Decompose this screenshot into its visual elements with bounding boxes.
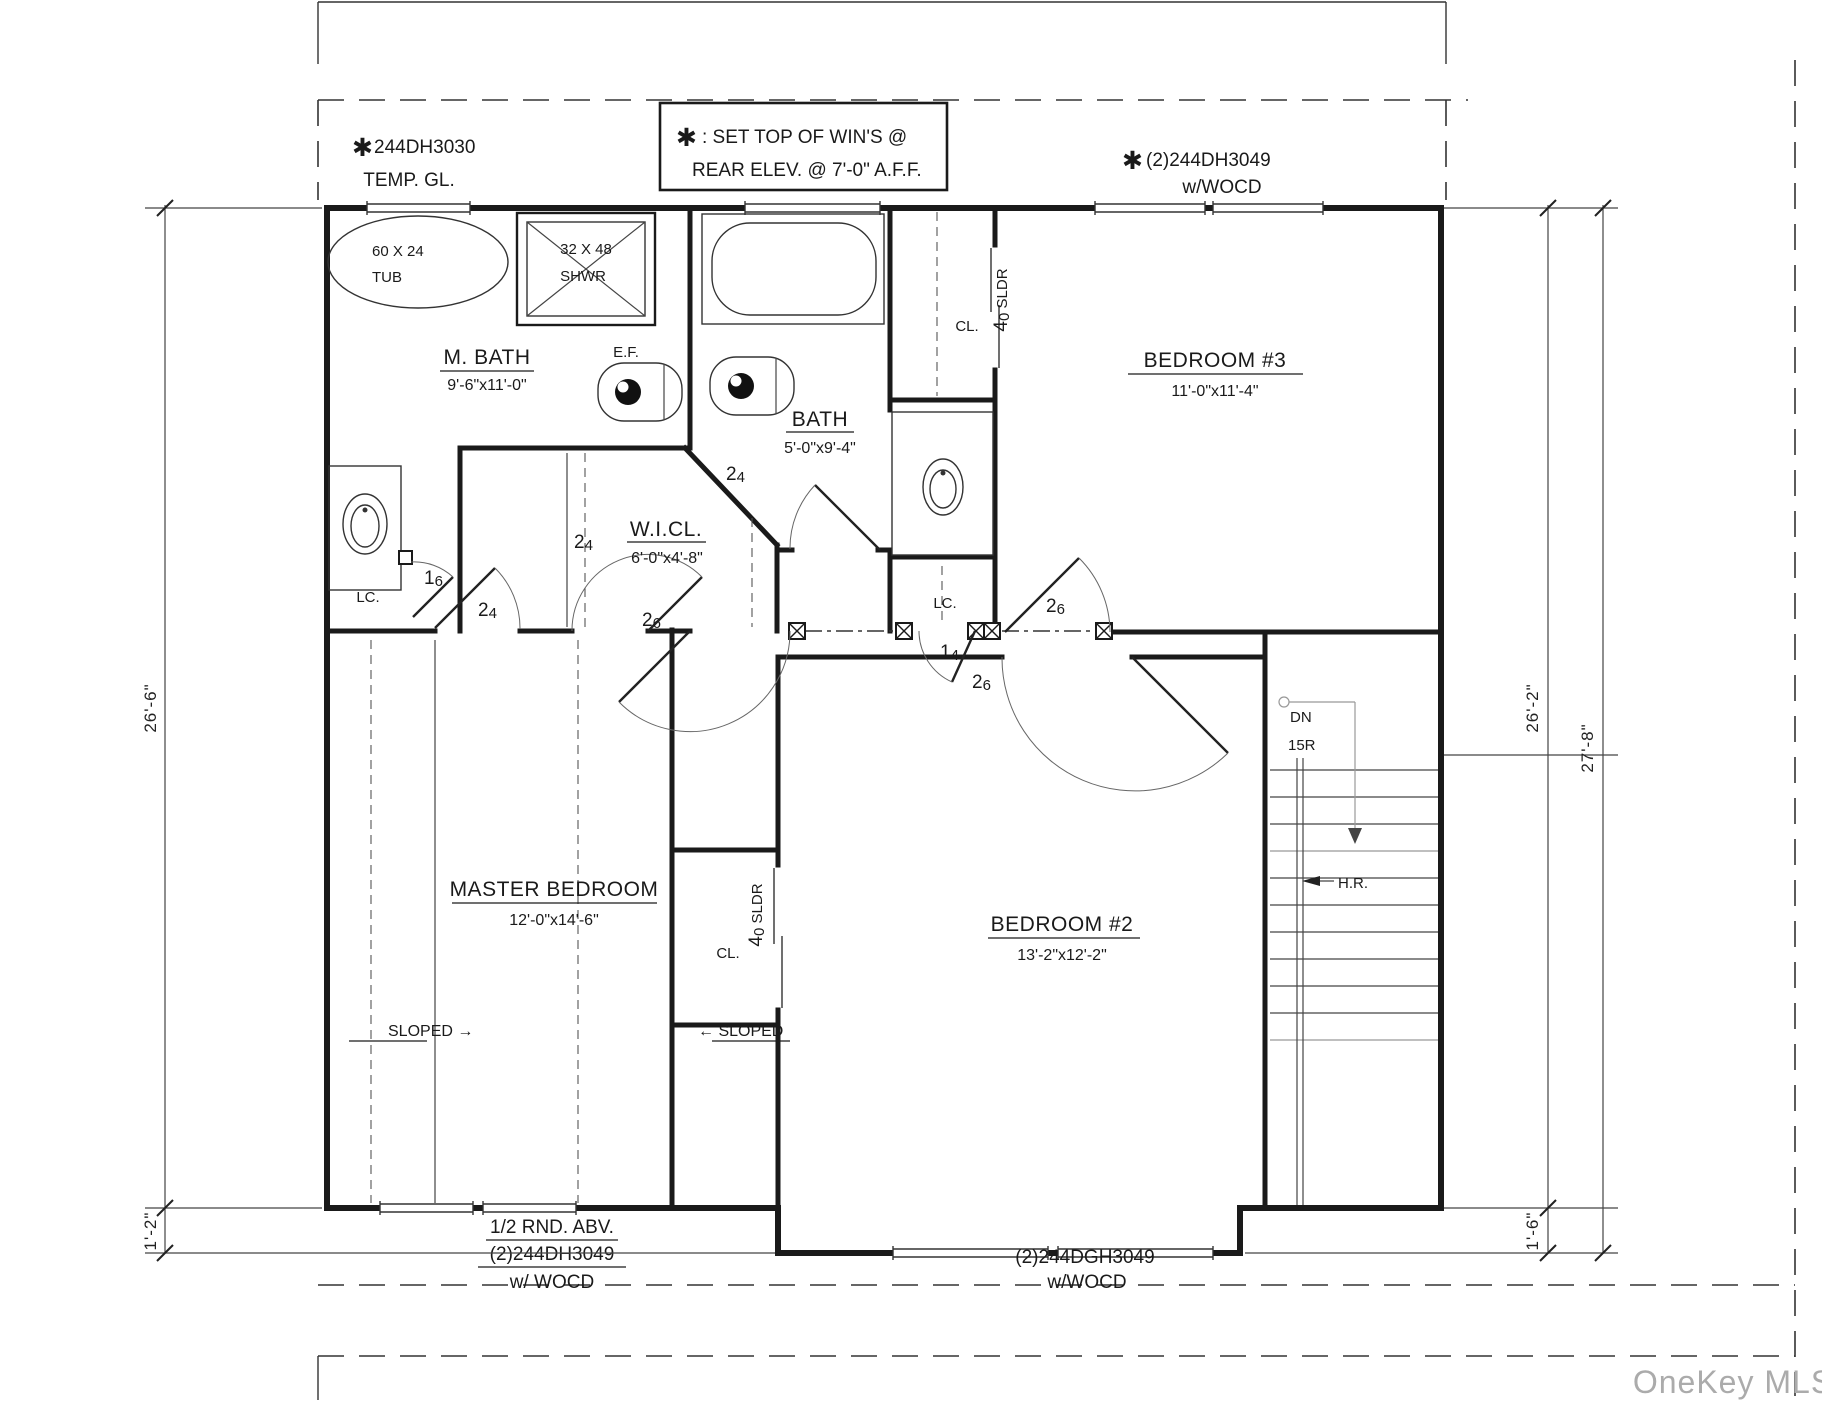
window-note-topleft-2: TEMP. GL. (363, 170, 455, 191)
room-dims-mbath: 9'-6"x11'-0" (447, 377, 526, 394)
sloped-ceiling-label-right: ← SLOPED (698, 1023, 783, 1040)
room-label-wicl: W.I.CL. (630, 518, 702, 541)
slider-size-label: 40 SLDR (746, 883, 768, 946)
door-mbath-24: 24 (435, 568, 520, 629)
stairs-risers-label: 15R (1288, 737, 1316, 754)
dimension-left-lower: 1'-2" (141, 1212, 160, 1251)
tub-size-label: 60 X 24 (372, 243, 424, 260)
dimension-right-inner: 26'-2" (1523, 683, 1542, 732)
window-master-b (483, 1201, 576, 1215)
door-bedroom3-26: 26 (1005, 558, 1110, 632)
room-label-bedroom2: BEDROOM #2 (991, 913, 1134, 936)
context-outline (318, 2, 1795, 1400)
column-post (984, 623, 1000, 639)
door-master-26: 26 (619, 610, 790, 732)
room-dims-bedroom2: 13'-2"x12'-2" (1017, 947, 1107, 964)
door-post (399, 551, 412, 564)
door-bath-24: 24 (726, 464, 880, 550)
column-post (896, 623, 912, 639)
room-dims-wicl: 6'-0"x4'-8" (631, 550, 703, 567)
door-bedroom2-26: 26 (972, 657, 1228, 791)
room-label-mbath: M. BATH (443, 346, 530, 369)
toilet-bath (710, 357, 794, 415)
window-master-a (380, 1201, 473, 1215)
door-26-label: 26 (1046, 596, 1065, 618)
dimension-ticks (157, 200, 1611, 1261)
dimension-right-outer: 27'-8" (1578, 723, 1597, 772)
window-note-bottomright-1: (2)244DGH3049 (1015, 1247, 1154, 1268)
note-box-line1: : SET TOP OF WIN'S @ (702, 127, 907, 148)
window-bedroom3-a (1095, 201, 1205, 215)
door-24-label: 24 (726, 464, 745, 486)
toilet-mbath (598, 363, 682, 421)
stairs-down-label: DN (1290, 709, 1312, 726)
closet-rods (567, 212, 942, 627)
shower-label: SHWR (560, 268, 606, 285)
window-mbath (367, 201, 470, 215)
window-bath (745, 201, 880, 215)
asterisk-icon: ✱ (1122, 147, 1143, 175)
annotations: ✱ 244DH3030 TEMP. GL. ✱ : SET TOP OF WIN… (352, 103, 1271, 1293)
window-note-topright: (2)244DH3049 (1146, 150, 1271, 171)
window-note-bottomleft-1: 1/2 RND. ABV. (490, 1217, 614, 1238)
room-label-bedroom3: BEDROOM #3 (1144, 349, 1287, 372)
floor-plan-page: 60 X 24 TUB 32 X 48 SHWR E.F. (0, 0, 1822, 1402)
bath-tub (702, 214, 884, 324)
door-24-label: 24 (478, 600, 497, 622)
room-dims-master: 12'-0"x14'-6" (509, 912, 599, 929)
closet-label: CL. (955, 318, 978, 335)
window-note-topright-2: w/WOCD (1181, 177, 1261, 198)
column-post (968, 623, 984, 639)
window-note-topleft: 244DH3030 (374, 137, 475, 158)
sloped-ceiling-label-left: SLOPED → (388, 1023, 473, 1040)
door-wicl-24: 24 (572, 532, 702, 631)
dimension-left: 26'-6" (141, 683, 160, 732)
door-16-label: 16 (424, 568, 443, 590)
room-label-master: MASTER BEDROOM (450, 878, 659, 901)
window-height-note-box: ✱ : SET TOP OF WIN'S @ REAR ELEV. @ 7'-0… (660, 103, 947, 190)
exhaust-fan-label: E.F. (613, 344, 639, 361)
stairs: DN 15R H.R. (1270, 697, 1438, 1205)
window-note-bottomleft-3: w/ WOCD (509, 1272, 594, 1293)
dimension-right-lower: 1'-6" (1523, 1212, 1542, 1251)
door-26-label: 26 (642, 610, 661, 632)
master-bath-tub: 60 X 24 TUB (328, 216, 508, 308)
note-box-line2: REAR ELEV. @ 7'-0" A.F.F. (692, 160, 922, 181)
asterisk-icon: ✱ (352, 134, 373, 162)
tub-label: TUB (372, 269, 402, 286)
vanity-mbath (329, 466, 401, 590)
window-note-bottomleft-2: (2)244DH3049 (490, 1244, 615, 1265)
window-note-bottomright-2: w/WOCD (1046, 1272, 1126, 1293)
slider-door-bedroom2-closet (774, 868, 782, 1008)
room-label-bath: BATH (792, 408, 848, 431)
asterisk-icon: ✱ (676, 124, 697, 152)
door-linen-16: 16 (411, 562, 453, 617)
watermark: OneKey MLS (1633, 1364, 1822, 1400)
door-24-label: 24 (574, 532, 593, 554)
handrail-label: H.R. (1338, 875, 1368, 892)
room-dims-bath: 5'-0"x9'-4" (784, 440, 856, 457)
window-bedroom3-b (1213, 201, 1323, 215)
door-14-label: 14 (940, 642, 959, 664)
room-dims-bedroom3: 11'-0"x11'-4" (1171, 383, 1258, 400)
shower: 32 X 48 SHWR (517, 213, 655, 325)
slider-size-label: 40 SLDR (991, 268, 1013, 331)
fixtures: 60 X 24 TUB 32 X 48 SHWR E.F. (328, 212, 999, 1203)
vanity-bath (892, 412, 993, 555)
linen-closet-label: LC. (356, 589, 379, 606)
door-26-label: 26 (972, 672, 991, 694)
closet-label: CL. (716, 945, 739, 962)
linen-closet-label: LC. (933, 595, 956, 612)
column-post (789, 623, 805, 639)
dimensions: 26'-6" 1'-2" 26'-2" 1'-6" 27'-8" (141, 200, 1618, 1261)
floor-plan-drawing: 60 X 24 TUB 32 X 48 SHWR E.F. (0, 0, 1822, 1402)
hall-columns (789, 623, 1112, 639)
shower-size-label: 32 X 48 (560, 241, 612, 258)
